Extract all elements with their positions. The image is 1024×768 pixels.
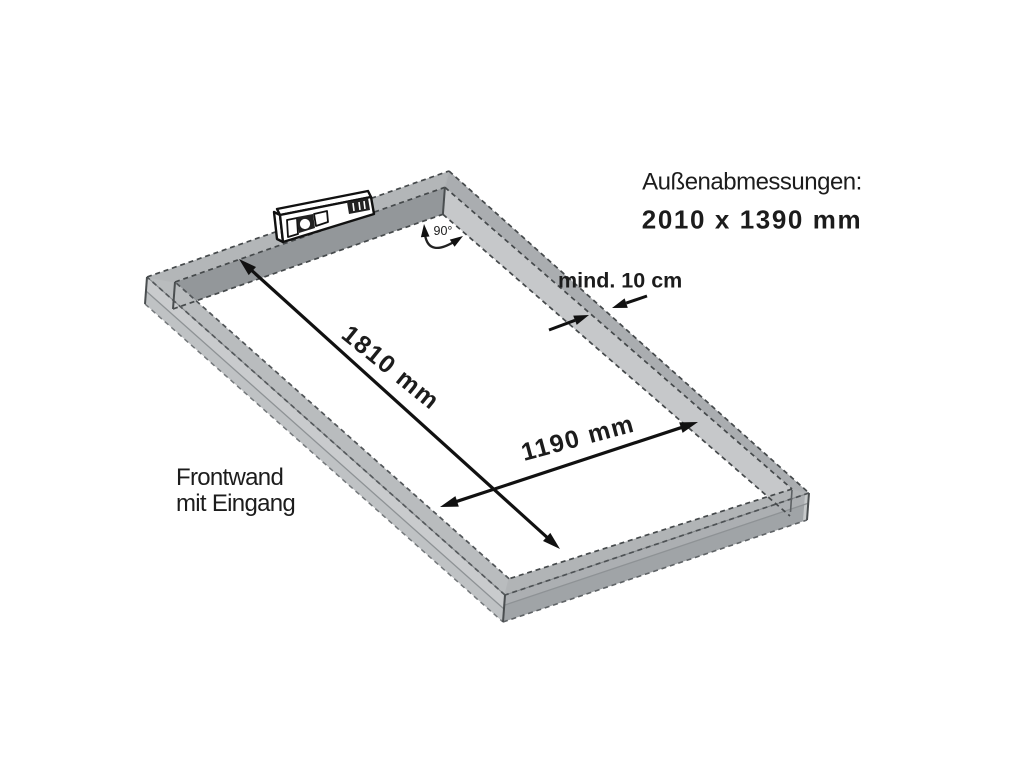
svg-text:mind. 10 cm: mind. 10 cm	[558, 269, 682, 293]
svg-text:90°: 90°	[434, 224, 453, 238]
svg-text:Außenabmessungen:: Außenabmessungen:	[642, 169, 862, 196]
svg-text:1190 mm: 1190 mm	[518, 410, 637, 467]
svg-text:2010 x 1390 mm: 2010 x 1390 mm	[642, 205, 862, 235]
svg-text:1810 mm: 1810 mm	[336, 320, 445, 416]
svg-text:mit Eingang: mit Eingang	[176, 490, 295, 517]
svg-text:Frontwand: Frontwand	[176, 464, 283, 491]
